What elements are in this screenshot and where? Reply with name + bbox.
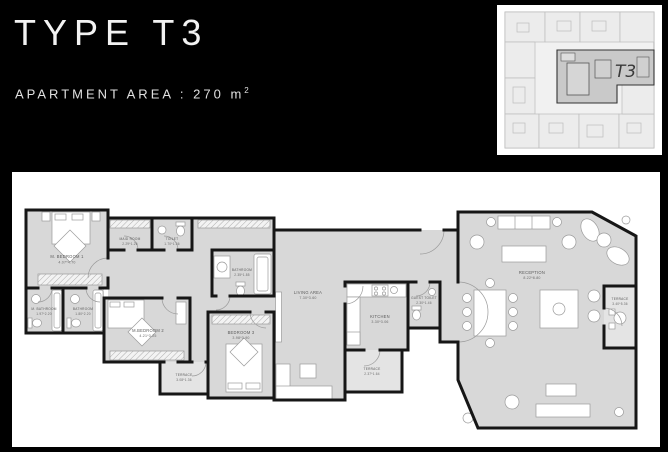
room-name-guest-toilet: GUEST TOILET <box>411 296 437 300</box>
room-dims-bedroom-3: 3.98*3.90 <box>232 336 249 340</box>
room-name-m-bedroom-1: M. BEDROOM 1 <box>50 254 84 259</box>
room-dims-m-bedroom-1: 4.07*4.70 <box>58 261 75 265</box>
area-text: APARTMENT AREA : 270 m <box>15 86 244 101</box>
room-dims-toilet: 1.70*1.36 <box>164 242 179 246</box>
room-name-terrace-left: TERRACE <box>176 373 193 377</box>
room-name-bathroom-left: BATHROOM <box>73 307 93 311</box>
floor-plan-panel: M. BEDROOM 1 4.07*4.70 MAID ROOM 2.29*1.… <box>12 172 660 447</box>
room-name-bathroom-center: BATHROOM <box>232 268 252 272</box>
furniture-pocket-closet <box>198 220 270 228</box>
room-name-kitchen: KITCHEN <box>370 314 390 319</box>
key-plan-unit-label: T3 <box>615 62 636 82</box>
room-name-m-bedroom-2: M.BEDROOM 2 <box>132 328 164 333</box>
room-dims-bathroom-center: 2.35*1.85 <box>234 273 249 277</box>
room-dims-maid-room: 2.29*1.26 <box>122 242 137 246</box>
area-superscript: 2 <box>244 86 251 95</box>
room-dims-reception: 8.22*8.80 <box>523 276 540 280</box>
room-name-m-bathroom: M. BATHROOM <box>31 307 56 311</box>
floor-plan-drawing: M. BEDROOM 1 4.07*4.70 MAID ROOM 2.29*1.… <box>12 172 660 447</box>
apartment-area-label: APARTMENT AREA : 270 m2 <box>15 86 252 101</box>
room-dims-terrace-right: 3.40*5.36 <box>612 302 627 306</box>
room-dims-m-bedroom-2: 4.21*3.25 <box>139 334 156 338</box>
furniture-maid-room <box>110 220 150 228</box>
room-name-terrace-middle: TERRACE <box>364 367 381 371</box>
floor-plan-page: TYPE T3 APARTMENT AREA : 270 m2 <box>0 0 668 452</box>
room-name-toilet: TOILET <box>166 237 179 241</box>
room-dims-kitchen: 3.30*3.06 <box>371 320 388 324</box>
room-name-maid-room: MAID ROOM <box>119 237 140 241</box>
room-dims-terrace-middle: 2.37*1.64 <box>364 372 379 376</box>
room-name-reception: RECEPTION <box>519 270 545 275</box>
room-name-bedroom-3: BEDROOM 3 <box>228 330 255 335</box>
key-plan-drawing: T3 <box>497 5 662 155</box>
page-title: TYPE T3 <box>14 12 208 54</box>
room-name-terrace-right: TERRACE <box>612 297 629 301</box>
room-dims-guest-toilet: 2.30*1.46 <box>416 301 431 305</box>
room-dims-living-area: 7.30*3.60 <box>299 296 316 300</box>
room-dims-bathroom-left: 1.80*2.20 <box>75 312 90 316</box>
key-plan: T3 <box>497 5 662 155</box>
room-name-living-area: LIVING AREA <box>294 290 322 295</box>
room-dims-terrace-left: 3.08*1.36 <box>176 378 191 382</box>
room-dims-m-bathroom: 1.97*2.20 <box>36 312 51 316</box>
